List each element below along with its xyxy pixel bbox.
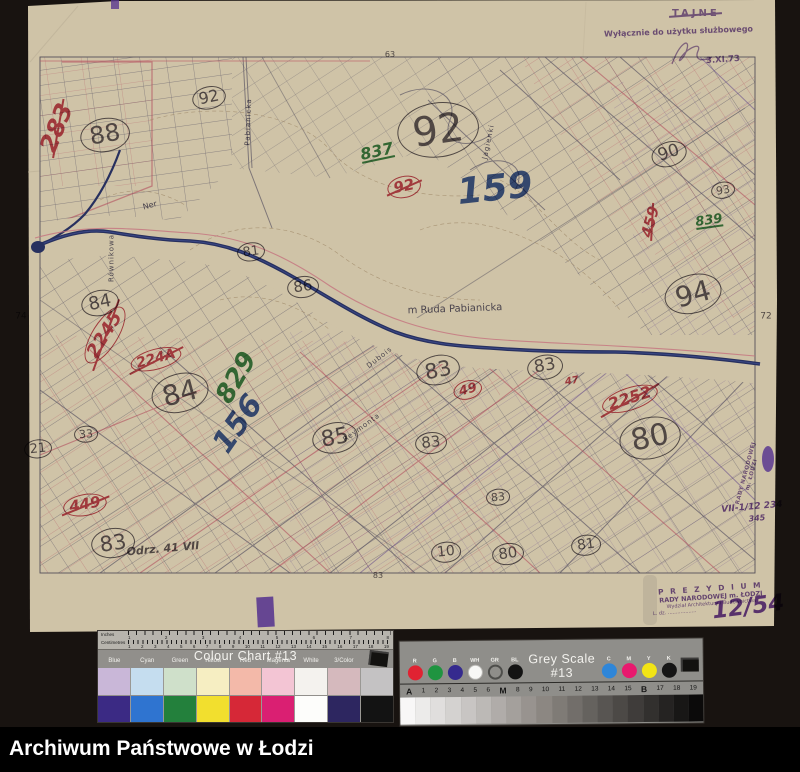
ink-circles-right: CMYK xyxy=(600,656,678,679)
ink-circle xyxy=(507,664,522,679)
purple-ink-blot-edge xyxy=(762,446,774,472)
colour-swatch-solid xyxy=(295,696,327,722)
grey-scale-number: 15 xyxy=(624,685,631,692)
colour-chart-column-label: Green xyxy=(164,658,197,664)
colour-swatch-tint xyxy=(164,668,196,695)
ink-circle-label: G xyxy=(433,658,437,664)
grey-scale-number: 2 xyxy=(435,687,439,694)
grey-step xyxy=(430,697,445,724)
grey-step xyxy=(461,697,476,724)
ink-circle-label: C xyxy=(607,656,611,662)
chart-logo xyxy=(368,650,389,667)
river-blob xyxy=(31,241,45,253)
grey-step xyxy=(415,697,430,724)
chart-logo-grey xyxy=(681,657,699,671)
ink-circle-wrap: G xyxy=(426,658,444,680)
grey-scale-number: 4 xyxy=(461,687,465,694)
ink-circle-label: WH xyxy=(470,658,479,664)
colour-swatch-tint xyxy=(295,668,327,695)
colour-swatch-solid xyxy=(164,696,196,722)
grey-scale-number: 5 xyxy=(473,687,477,694)
ink-circle-label: M xyxy=(626,656,631,662)
grey-scale-number: 6 xyxy=(486,687,490,694)
ruler-cm-label: Centimetres xyxy=(101,640,125,645)
grey-scale-number: 19 xyxy=(690,684,697,691)
ink-circle xyxy=(487,665,502,680)
ink-circle xyxy=(661,663,676,678)
colour-swatch-solid xyxy=(328,696,360,722)
ink-circle-wrap: BL xyxy=(506,657,524,679)
grey-scale-number: B xyxy=(641,683,647,693)
ink-circle-label: R xyxy=(413,658,417,664)
ink-circle xyxy=(407,665,422,680)
colour-chart-column-label: 3/Color xyxy=(327,658,360,664)
colour-swatch-solid xyxy=(197,696,229,722)
archive-bar: Archiwum Państwowe w Łodzi xyxy=(0,727,800,772)
grey-scale-number: 17 xyxy=(656,685,663,692)
grey-scale-number: 18 xyxy=(673,685,680,692)
grey-step xyxy=(597,695,612,722)
grey-step xyxy=(491,696,506,723)
grey-step xyxy=(582,696,597,723)
colour-swatch-tint xyxy=(230,668,262,695)
colour-swatch-tint xyxy=(361,668,393,695)
ink-circle-wrap: K xyxy=(660,656,678,678)
purple-ink-tick xyxy=(111,0,119,9)
ruler-inches-label: Inches xyxy=(101,632,114,637)
grey-step xyxy=(552,696,567,723)
grey-scale-number: 9 xyxy=(529,686,533,693)
ink-circle-wrap: Y xyxy=(640,656,658,678)
colour-chart-column-label: Cyan xyxy=(131,658,164,664)
grey-scale-number: 3 xyxy=(448,687,452,694)
grey-scale-number: A xyxy=(406,686,412,696)
colour-chart: Inches 12345678 Centimetres 123456789101… xyxy=(98,631,393,722)
colour-swatch-tint xyxy=(328,668,360,695)
ink-circle xyxy=(621,663,636,678)
archival-scan-viewer: m Ruda PabianickaRównikowaPabianickaJagi… xyxy=(0,0,800,772)
grey-step xyxy=(400,697,415,724)
colour-chart-solid-row xyxy=(98,696,393,722)
colour-chart-column-label: Blue xyxy=(98,658,131,664)
grey-step xyxy=(643,695,658,722)
map-scan xyxy=(0,0,800,632)
grey-step xyxy=(567,696,582,723)
colour-swatch-solid xyxy=(262,696,294,722)
stamp-secret: TAJNE xyxy=(672,8,720,19)
grey-scale-number: 14 xyxy=(608,685,615,692)
grey-step xyxy=(612,695,627,722)
grey-gradient-strip xyxy=(400,694,703,724)
grey-scale-number: 11 xyxy=(558,686,565,693)
colour-swatch-tint xyxy=(197,668,229,695)
grey-scale-number: 10 xyxy=(542,686,549,693)
ink-circle xyxy=(601,663,616,678)
ink-circle-wrap: GR xyxy=(486,657,504,679)
colour-chart-column-label: Magenta xyxy=(262,658,295,664)
grey-scale-number: 13 xyxy=(591,686,598,693)
ink-circle xyxy=(467,665,482,680)
grey-scale-number: 1 xyxy=(422,687,426,694)
grey-scale-chart: RGBWHGRBL Grey Scale #13 CMYK A123456M89… xyxy=(400,638,704,725)
grey-step xyxy=(476,697,491,724)
ink-circle-label: B xyxy=(453,658,457,664)
colour-chart-labels: BlueCyanGreenYellowRedMagentaWhite3/Colo… xyxy=(98,658,393,664)
colour-swatch-solid xyxy=(131,696,163,722)
grey-step xyxy=(521,696,536,723)
ink-circle-wrap: B xyxy=(446,658,464,680)
parcel-grid xyxy=(35,57,760,573)
colour-chart-column-label: White xyxy=(295,658,328,664)
grey-step xyxy=(688,694,703,721)
colour-chart-tint-row xyxy=(98,668,393,695)
grey-step xyxy=(673,695,688,722)
grey-step xyxy=(506,696,521,723)
colour-swatch-tint xyxy=(131,668,163,695)
grey-step xyxy=(446,697,461,724)
colour-swatch-solid xyxy=(98,696,130,722)
ink-circle-label: GR xyxy=(491,658,499,664)
ink-circle-label: Y xyxy=(647,656,651,662)
grey-scale-number: 12 xyxy=(575,686,582,693)
colour-chart-column-label: Yellow xyxy=(196,658,229,664)
ink-circle-label: BL xyxy=(511,657,518,663)
ink-circles-left: RGBWHGRBL xyxy=(406,657,524,680)
ink-circle-wrap: C xyxy=(600,656,618,678)
grey-scale-bar: RGBWHGRBL Grey Scale #13 CMYK xyxy=(400,638,703,683)
grey-scale-number: M xyxy=(499,685,506,695)
ink-circle xyxy=(447,665,462,680)
ink-circle xyxy=(641,663,656,678)
ink-circle-wrap: WH xyxy=(466,658,484,680)
colour-chart-column-label: Red xyxy=(229,658,262,664)
purple-ink-blot xyxy=(256,597,275,628)
ink-circle-wrap: M xyxy=(620,656,638,678)
ink-circle-label: K xyxy=(667,656,671,662)
ink-circle xyxy=(427,665,442,680)
archive-name: Archiwum Państwowe w Łodzi xyxy=(9,737,314,761)
colour-swatch-solid xyxy=(361,696,393,722)
colour-chart-ruler: Inches 12345678 Centimetres 123456789101… xyxy=(98,631,393,650)
grey-scale-number: 8 xyxy=(516,686,520,693)
grey-step xyxy=(658,695,673,722)
colour-swatch-solid xyxy=(230,696,262,722)
colour-swatch-tint xyxy=(262,668,294,695)
grey-step xyxy=(627,695,642,722)
colour-swatch-tint xyxy=(98,668,130,695)
ink-circle-wrap: R xyxy=(406,658,424,680)
grey-scale-title: Grey Scale #13 xyxy=(524,651,600,680)
grey-step xyxy=(537,696,552,723)
